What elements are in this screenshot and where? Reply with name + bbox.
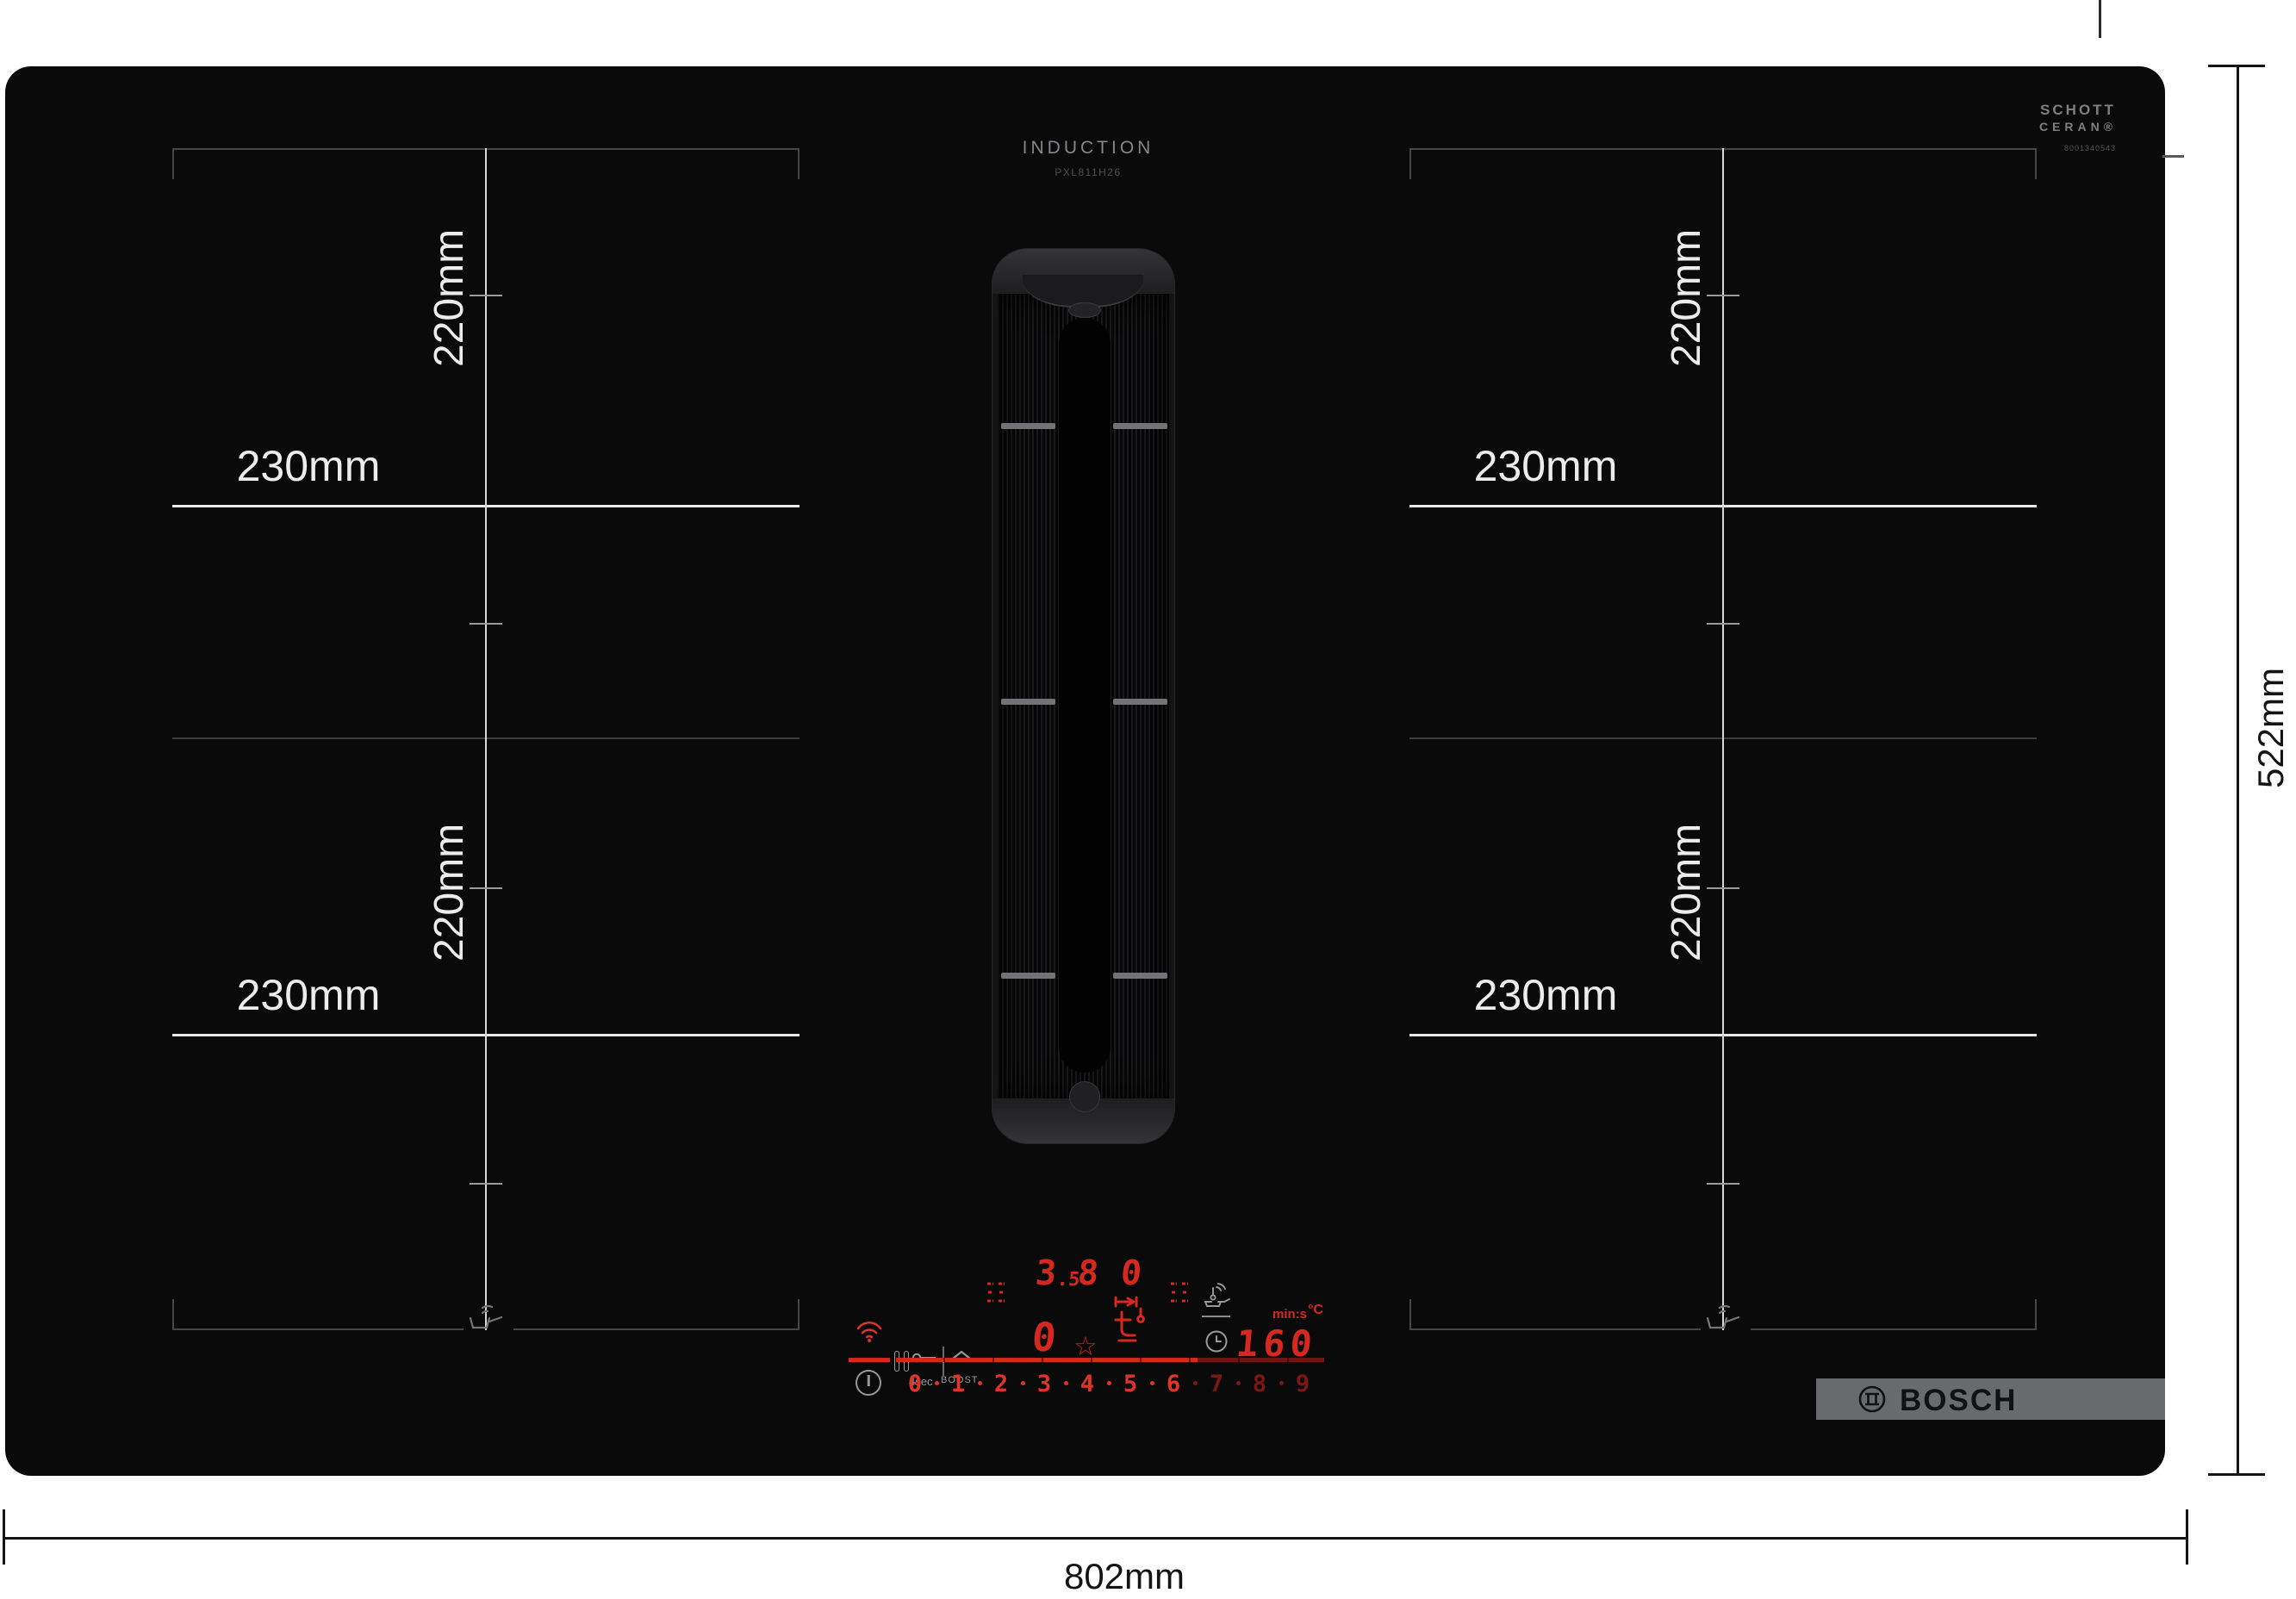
zone-dim-label-230-upper: 230mm [1425,441,1666,491]
timer-unit-minsec: min:s [1272,1307,1307,1322]
zone-dim-label-230-lower: 230mm [188,970,429,1020]
glass-brand-block: SCHOTT CERAN® 8001340543 [2026,102,2130,152]
zone-tick [470,887,502,889]
slider-scale-number[interactable]: 5 [1123,1371,1137,1397]
zone-bracket-stub [2035,148,2037,179]
bosch-emblem-icon [1857,1384,1887,1414]
zone-bracket-bottom [172,1328,464,1330]
zone-bracket-stub [172,148,174,179]
crop-mark [2099,0,2101,38]
dim-width-tick-left [3,1509,5,1565]
bosch-wordmark: BOSCH [1900,1384,2017,1418]
scale-dot [978,1381,982,1385]
slider-scale-number[interactable]: 9 [1296,1371,1310,1397]
power-slider[interactable] [896,1358,1324,1362]
bosch-logo-band: BOSCH [1816,1378,2165,1420]
scale-dot [1021,1381,1025,1385]
vent-divider [1113,423,1167,429]
zone-dim-label-230-lower: 230mm [1425,970,1666,1020]
zone-tick [470,623,502,625]
page: INDUCTION PXL811H26 SCHOTT CERAN® 800134… [0,0,2296,1599]
zone-bracket-stub [1409,148,1411,179]
zone-tick [470,295,502,296]
vent-center-slot [1059,318,1111,1073]
zone-tick [1707,295,1739,296]
slider-scale-number[interactable]: 8 [1253,1371,1266,1397]
zone-dim-label-230-upper: 230mm [188,441,429,491]
slider-scale-number[interactable]: 7 [1210,1371,1223,1397]
control-panel: 4sec BOOST 3 .5 8 0 0 ☆ [844,1254,1344,1409]
hood-display-digit3[interactable]: 0 [1119,1254,1143,1293]
zone-center-line [485,148,487,1330]
scale-dot [1150,1381,1154,1385]
dim-depth-tick-bottom [2208,1473,2265,1476]
scale-dot [1107,1381,1111,1385]
pan-detect-icon [1701,1304,1742,1332]
slider-scale-number[interactable]: 0 [908,1371,922,1397]
temp-unit: °C [1308,1303,1323,1318]
wifi-icon[interactable] [856,1321,883,1343]
zone-bracket-bottom [1751,1328,2037,1330]
dim-width-label: 802mm [986,1556,1262,1597]
induction-label: INDUCTION [959,138,1217,159]
slider-scale-number[interactable]: 1 [951,1371,965,1397]
zone-bracket-bottom [1409,1328,1701,1330]
scale-dot [935,1381,939,1385]
dim-width-line [3,1537,2188,1540]
zone-bracket-stub [798,148,800,179]
vent-divider [1001,973,1055,979]
zone-bracket-stub [2035,1299,2037,1330]
zone-tick [1707,623,1739,625]
hood-level-icon-right[interactable] [1168,1280,1191,1306]
slider-scale-number[interactable]: 3 [1037,1371,1051,1397]
zone-tick [1707,1183,1739,1185]
power-button[interactable] [856,1370,881,1396]
model-print-block: INDUCTION PXL811H26 [959,138,1217,178]
slider-scale-number[interactable]: 6 [1167,1371,1180,1397]
zone-column-left: 220mm 220mm 230mm 230mm [172,148,800,1334]
zone-bracket-bottom [513,1328,800,1330]
fry-sensor-icon[interactable] [1113,1295,1146,1345]
vent-module [992,248,1175,1144]
schott-label: SCHOTT [2026,102,2130,119]
hood-display-digit2[interactable]: 8 [1076,1254,1100,1293]
vent-divider [1113,973,1167,979]
hood-level-icon-left[interactable] [985,1280,1007,1306]
zone-tick [470,1183,502,1185]
scale-dot [1193,1381,1198,1385]
scale-dot [1236,1381,1241,1385]
clock-icon[interactable] [1204,1329,1229,1353]
vent-divider [1001,699,1055,705]
zone-column-right: 220mm 220mm 230mm 230mm [1409,148,2037,1334]
zone-dim-label-220-upper: 220mm [427,229,472,367]
scale-dot [1064,1381,1068,1385]
slider-scale-number[interactable]: 4 [1080,1371,1094,1397]
serial-number: 8001340543 [2026,144,2130,152]
scale-dot [1279,1381,1284,1385]
dim-width-tick-right [2186,1509,2188,1565]
pan-detect-icon [464,1304,505,1332]
zone-bracket-stub [798,1299,800,1330]
zone-power-display[interactable]: 0 [1030,1314,1058,1360]
timer-separator-line [1202,1316,1230,1317]
vent-knob-bottom [1069,1081,1100,1112]
vent-knob-top [1068,302,1101,318]
pan-steam-icon[interactable] [1202,1281,1235,1307]
slider-scale-number[interactable]: 2 [994,1371,1008,1397]
zone-dim-label-220-lower: 220mm [1664,824,1709,961]
ceran-label: CERAN® [2026,120,2130,134]
zone-bracket-stub [172,1299,174,1330]
zone-tick [1707,887,1739,889]
vent-divider [1113,699,1167,705]
dim-depth-label: 522mm [2251,642,2291,814]
zone-bracket-stub [1409,1299,1411,1330]
dim-depth-tick-top [2208,65,2265,67]
model-number: PXL811H26 [959,166,1217,178]
hood-display-main[interactable]: 3 [1034,1254,1058,1293]
power-slider-head[interactable] [849,1358,890,1362]
dim-depth-line [2237,66,2239,1476]
zone-dim-label-220-upper: 220mm [1664,229,1709,367]
power-icon [868,1375,870,1386]
vent-divider [1001,423,1055,429]
zone-center-line [1722,148,1724,1330]
edge-tick-mark [2162,155,2184,158]
zone-dim-label-220-lower: 220mm [427,824,472,961]
